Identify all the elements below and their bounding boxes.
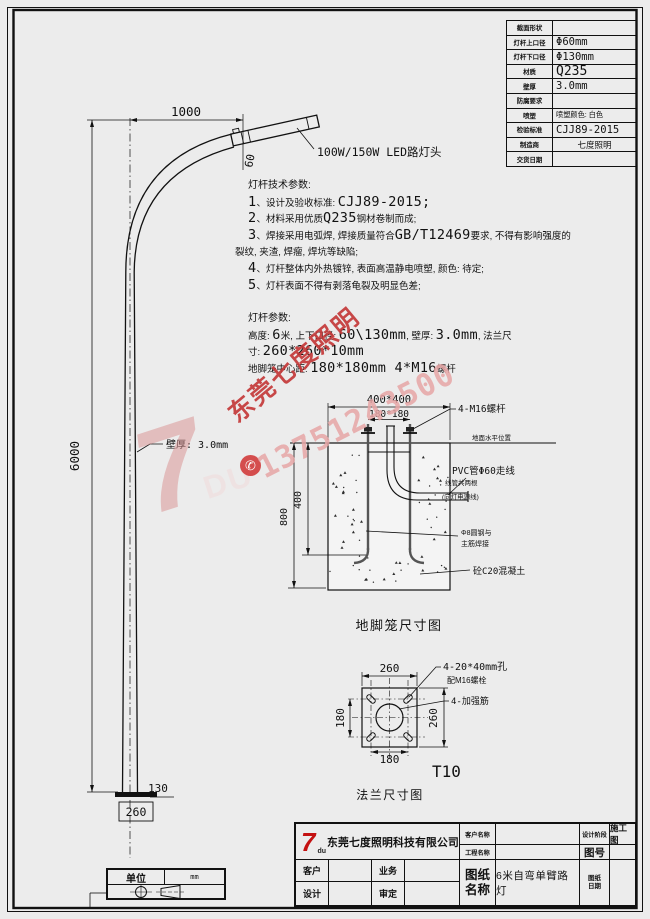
sheet-date-label-line1: 图纸 <box>588 875 601 882</box>
technical-note-line: 2、材料采用优质Q235钢材卷制而成; <box>248 209 638 226</box>
concrete-speckle <box>359 556 360 557</box>
technical-note-line-segment: 、材料采用优质 <box>256 214 323 225</box>
technical-note-line-segment: 、灯杆整体内外热镀锌, 表面高温静电喷塑, 颜色: 待定; <box>256 264 483 275</box>
lamp-label: 100W/150W LED路灯头 <box>317 145 442 159</box>
concrete-speckle <box>395 580 396 581</box>
unit-label: 单位 <box>108 870 165 884</box>
unit-value: mm <box>165 870 224 884</box>
spec-row-label: 灯杆上口径 <box>507 36 553 50</box>
foundation-dim-400: 400 <box>293 491 304 509</box>
drawing-number-label: 图号 <box>580 845 610 860</box>
concrete-speckle <box>435 494 436 495</box>
concrete-speckle <box>329 571 330 572</box>
sales-label: 业务 <box>372 860 405 882</box>
spec-table-row: 材质Q235 <box>507 65 636 80</box>
spec-row-label: 壁厚 <box>507 79 553 93</box>
foundation-dim-800: 800 <box>279 508 290 526</box>
technical-note-line-segment: 、设计及验收标准: <box>256 198 337 209</box>
company-logo-7: 7 <box>301 827 315 857</box>
technical-notes: 灯杆技术参数: 1、设计及验收标准: CJJ89-2015;2、材料采用优质Q2… <box>248 176 638 292</box>
drawing-sheet: 1000 6000 60 100W/150W LED路灯头 壁厚: 3.0mm … <box>0 0 650 919</box>
concrete-speckle <box>407 563 408 564</box>
concrete-speckle <box>444 567 445 568</box>
sheet-date-label-line2: 日期 <box>588 883 601 890</box>
pvc-label-2: 线管共两根 <box>445 478 478 487</box>
pole-parameter-line-segment: , 法兰尺 <box>478 331 512 342</box>
reviewer-value <box>405 882 460 905</box>
client-name-value <box>496 824 580 845</box>
technical-note-line-segment: CJJ89-2015; <box>338 194 431 210</box>
spec-table-row: 防腐要求 <box>507 94 636 109</box>
spec-row-label: 喷塑 <box>507 109 553 123</box>
technical-note-line: 裂纹, 夹渣, 焊瘤, 焊坑等缺陷; <box>235 242 638 259</box>
pvc-label-1: PVC管Φ60走线 <box>452 465 515 477</box>
company-name: 东莞七度照明科技有限公司 <box>327 834 459 850</box>
pole-parameter-line-segment: 高度: <box>248 331 272 342</box>
concrete-speckle <box>447 477 448 478</box>
spec-row-value <box>553 94 636 108</box>
customer-label: 客户 <box>296 860 329 882</box>
foundation-drawing <box>288 403 556 590</box>
spec-row-value: 喷塑颜色: 白色 <box>553 109 636 123</box>
customer-value <box>329 860 372 882</box>
unit-box: 单位 mm <box>106 868 226 900</box>
spec-table-row: 灯杆下口径Φ130mm <box>507 50 636 65</box>
technical-note-line-segment: 裂纹, 夹渣, 焊瘤, 焊坑等缺陷; <box>235 247 358 258</box>
pole-dim-6000: 6000 <box>67 441 82 471</box>
designer-label: 设计 <box>296 882 329 905</box>
concrete-speckle <box>419 502 420 503</box>
spec-row-label: 防腐要求 <box>507 94 553 108</box>
flange-thickness-label: T10 <box>432 762 461 781</box>
concrete-speckle <box>353 519 354 520</box>
pole-parameter-line-segment: 螺杆 <box>437 364 456 375</box>
concrete-speckle <box>356 492 357 493</box>
concrete-speckle <box>441 565 442 566</box>
pole-parameter-line-segment: 260*260*10mm <box>263 343 364 359</box>
flange-caption: 法兰尺寸图 <box>356 788 424 802</box>
spec-row-value: 3.0mm <box>553 79 636 93</box>
flange-rib-label: 4-加强筋 <box>451 695 489 707</box>
concrete-speckle <box>359 540 360 541</box>
spec-row-value: 七度照明 <box>553 138 636 152</box>
spec-row-label: 灯杆下口径 <box>507 50 553 64</box>
technical-note-line: 1、设计及验收标准: CJJ89-2015; <box>248 193 638 210</box>
spec-row-value <box>553 152 636 166</box>
pole-parameter-line-segment: 米, 上下口径: <box>281 331 339 342</box>
spec-row-label: 交货日期 <box>507 152 553 166</box>
spec-table-row: 检验标准CJJ89-2015 <box>507 123 636 138</box>
foundation-dim-outer: 400*400 <box>367 394 411 406</box>
concrete-speckle <box>347 516 348 517</box>
concrete-speckle <box>359 569 360 570</box>
designer-value <box>329 882 372 905</box>
flange-labels: 260 180 180 260 4-20*40mm孔 配M16螺栓 4-加强筋 … <box>334 661 507 802</box>
spec-row-label: 材质 <box>507 65 553 79</box>
concrete-speckle <box>354 520 355 521</box>
concrete-speckle <box>353 565 354 566</box>
pole-parameter-line: 寸: 260*260*10mm <box>248 342 638 359</box>
pole-dim-1000: 1000 <box>171 104 201 119</box>
pole-dim-260: 260 <box>126 805 147 819</box>
flange-dim-top: 260 <box>380 662 400 675</box>
spec-row-label: 制造商 <box>507 138 553 152</box>
spec-row-value: Q235 <box>553 65 636 79</box>
technical-note-line: 5、灯杆表面不得有剥落龟裂及明显色差; <box>248 276 638 293</box>
rebar-label-2: 主筋焊接 <box>461 539 489 548</box>
pole-parameter-line-segment: 3.0mm <box>436 327 478 343</box>
company-logo-du: du <box>317 848 326 855</box>
spec-table-row: 交货日期 <box>507 152 636 166</box>
concrete-speckle <box>440 484 441 485</box>
flange-dim-left: 180 <box>334 708 347 728</box>
reviewer-label: 审定 <box>372 882 405 905</box>
pole-dim-130: 130 <box>148 782 168 795</box>
spec-table-row: 喷塑喷塑颜色: 白色 <box>507 109 636 124</box>
design-stage-label: 设计阶段 <box>580 824 610 845</box>
sheet-name-label: 图纸 名称 <box>460 860 496 905</box>
spec-row-value: Φ60mm <box>553 36 636 50</box>
drawing-number-value <box>610 845 635 860</box>
concrete-speckle <box>431 527 432 528</box>
design-stage-value: 施工图 <box>610 824 635 845</box>
ground-level-label: 地面水平位置 <box>472 433 512 442</box>
concrete-speckle <box>358 455 359 456</box>
pole-parameter-line-segment: 地脚笼中心距: <box>248 364 310 375</box>
sheet-name-value: 6米自弯单臂路灯 <box>496 860 580 905</box>
concrete-speckle <box>343 487 344 488</box>
concrete-speckle <box>429 485 430 486</box>
wall-thickness-label: 壁厚: 3.0mm <box>166 438 228 451</box>
sheet-date-value <box>610 860 635 905</box>
technical-note-line-segment: GB/T12469 <box>395 227 471 243</box>
technical-note-line: 3、焊接采用电弧焊, 焊接质量符合GB/T12469要求, 不得有影响强度的 <box>248 226 638 243</box>
technical-note-line-segment: 钢材卷制而成; <box>357 214 417 225</box>
pole-parameter-line: 高度: 6米, 上下口径: 60\130mm, 壁厚: 3.0mm, 法兰尺 <box>248 326 638 343</box>
concrete-speckle <box>352 455 353 456</box>
sheet-name-label-line2: 名称 <box>465 883 490 897</box>
pole-parameter-line-segment: 60\130mm <box>339 327 406 343</box>
spec-row-value: Φ130mm <box>553 50 636 64</box>
company-banner: 7 du 东莞七度照明科技有限公司 <box>296 824 460 860</box>
rebar-label-1: Φ8圆钢与 <box>461 528 491 537</box>
pole-parameter-line-segment: 6 <box>272 327 280 343</box>
concrete-label: 砼C20混凝土 <box>473 565 525 577</box>
spec-table-row: 灯杆上口径Φ60mm <box>507 36 636 51</box>
flange-dim-bottom: 180 <box>380 753 400 766</box>
technical-note-line: 4、灯杆整体内外热镀锌, 表面高温静电喷塑, 颜色: 待定; <box>248 259 638 276</box>
pvc-label-3: (向灯电源线) <box>442 492 479 501</box>
pole-parameters-title: 灯杆参数: <box>248 309 638 326</box>
flange-dim-right: 260 <box>427 708 440 728</box>
concrete-speckle <box>355 480 356 481</box>
technical-notes-title: 灯杆技术参数: <box>248 176 638 193</box>
sales-value <box>405 860 460 882</box>
spec-row-value: CJJ89-2015 <box>553 123 636 137</box>
concrete-speckle <box>444 509 445 510</box>
technical-note-line-segment: 要求, 不得有影响强度的 <box>471 231 571 242</box>
pole-parameter-line: 地脚笼中心距: 180*180mm 4*M16螺杆 <box>248 359 638 376</box>
flange-holes-label-1: 4-20*40mm孔 <box>443 661 507 673</box>
technical-note-line-segment: Q235 <box>323 210 357 226</box>
spec-table-row: 制造商七度照明 <box>507 138 636 153</box>
pole-parameter-line-segment: , 壁厚: <box>406 331 436 342</box>
technical-note-line-segment: 、灯杆表面不得有剥落龟裂及明显色差; <box>256 281 420 292</box>
project-name-label: 工程名称 <box>460 845 496 860</box>
sheet-date-label: 图纸 日期 <box>580 860 610 905</box>
concrete-speckle <box>400 570 401 571</box>
pole-dim-60: 60 <box>242 153 257 169</box>
spec-row-label: 检验标准 <box>507 123 553 137</box>
pole-parameters: 灯杆参数: 高度: 6米, 上下口径: 60\130mm, 壁厚: 3.0mm,… <box>248 309 638 375</box>
spec-table-row: 壁厚3.0mm <box>507 79 636 94</box>
spec-row-label: 截面形状 <box>507 21 553 35</box>
flange-holes-label-2: 配M16螺栓 <box>447 675 487 685</box>
spec-table: 截面形状灯杆上口径Φ60mm灯杆下口径Φ130mm材质Q235壁厚3.0mm防腐… <box>506 20 637 167</box>
technical-note-line-segment: 、焊接采用电弧焊, 焊接质量符合 <box>256 231 394 242</box>
company-logo-icon: 7 du <box>301 827 323 857</box>
anchor-bolt-label: 4-M16螺杆 <box>458 403 506 415</box>
spec-row-value <box>553 21 636 35</box>
client-name-label: 客户名称 <box>460 824 496 845</box>
concrete-speckle <box>369 570 370 571</box>
title-block: 7 du 东莞七度照明科技有限公司 客户 业务 设计 审定 客户名称 设计阶段 … <box>294 822 637 907</box>
pole-parameter-line-segment: 180*180mm 4*M16 <box>310 360 436 376</box>
concrete-speckle <box>436 517 437 518</box>
pole-parameter-line-segment: 寸: <box>248 347 263 358</box>
sheet-name-label-line1: 图纸 <box>465 868 490 882</box>
foundation-caption: 地脚笼尺寸图 <box>355 618 442 633</box>
project-name-value <box>496 845 580 860</box>
concrete-speckle <box>427 519 428 520</box>
concrete-speckle <box>373 582 374 583</box>
foundation-dim-inner: 180*180 <box>369 409 409 420</box>
spec-table-row: 截面形状 <box>507 21 636 36</box>
